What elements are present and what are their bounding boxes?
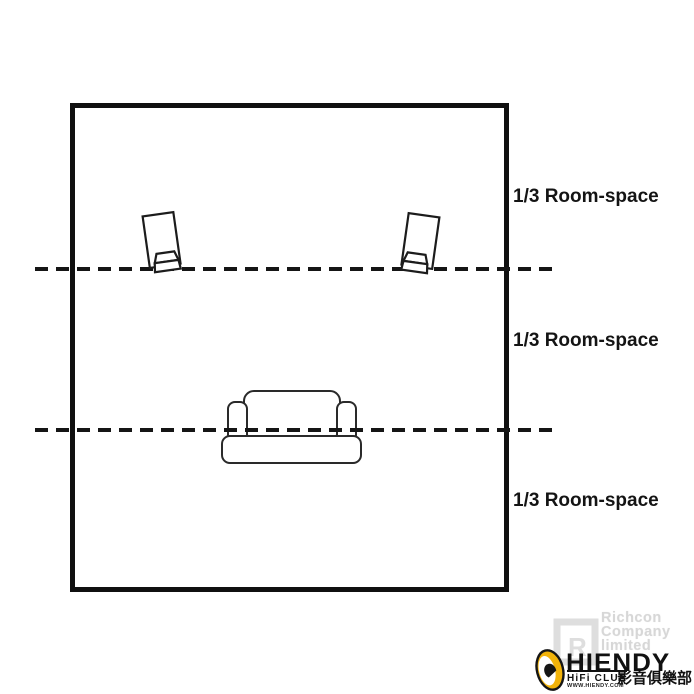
region-label-top: 1/3 Room-space [513,186,683,208]
hiendy-logo: HIENDY HiFi CLUB WWW.HIENDY.COM 影音俱樂部 [533,644,694,694]
hiendy-cjk-label: 影音俱樂部 [617,667,692,688]
dashed-third-line-bottom [35,428,559,432]
hiendy-speaker-icon [535,647,566,693]
room-outline [70,103,509,592]
richcon-line-1: Richcon [601,611,671,625]
region-label-middle: 1/3 Room-space [513,330,683,352]
right-speaker-icon [388,207,452,286]
left-speaker-icon [130,206,194,285]
dashed-third-line-top [35,267,559,271]
hiendy-url-label: WWW.HIENDY.COM [567,683,624,689]
region-label-bottom: 1/3 Room-space [513,490,683,512]
richcon-line-2: Company [601,625,671,639]
page-canvas: 1/3 Room-space 1/3 Room-space 1/3 Room-s… [0,0,694,694]
